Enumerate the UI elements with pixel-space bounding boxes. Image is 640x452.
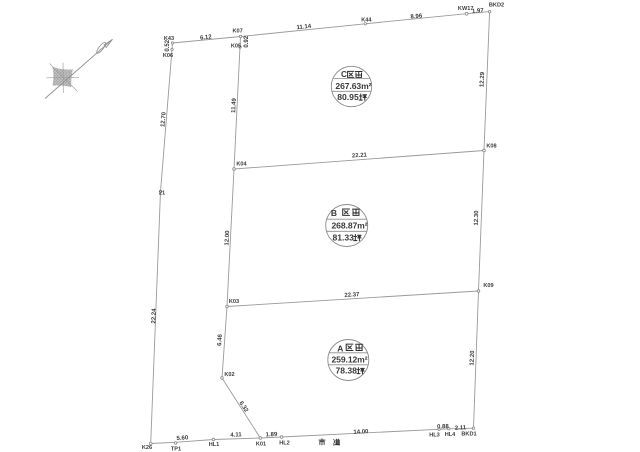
svg-text:BKD1: BKD1 [461, 432, 476, 438]
svg-text:11.49: 11.49 [231, 97, 238, 113]
svg-text:11.14: 11.14 [296, 24, 312, 32]
svg-text:K02: K02 [224, 372, 234, 378]
svg-text:K07: K07 [232, 29, 242, 35]
svg-text:22.24: 22.24 [151, 308, 158, 324]
svg-text:K03: K03 [229, 299, 239, 305]
svg-text:6.32: 6.32 [237, 401, 249, 415]
svg-text:6.12: 6.12 [200, 34, 213, 41]
svg-text:80.95: 80.95 [337, 92, 359, 102]
svg-text:2.11: 2.11 [455, 425, 467, 431]
svg-text:K04: K04 [236, 162, 247, 168]
svg-text:22.37: 22.37 [344, 292, 360, 299]
svg-text:K05: K05 [231, 44, 241, 50]
svg-text:K44: K44 [361, 18, 372, 24]
svg-text:K08: K08 [486, 144, 496, 150]
svg-text:12.20: 12.20 [470, 350, 477, 366]
svg-text:K01: K01 [256, 442, 266, 448]
svg-text:TP1: TP1 [171, 447, 181, 452]
svg-text:259.12m²: 259.12m² [332, 355, 368, 365]
svg-text:267.63m²: 267.63m² [335, 81, 371, 91]
svg-text:81.33: 81.33 [332, 232, 354, 242]
svg-text:B: B [331, 208, 337, 218]
svg-text:0.92: 0.92 [244, 35, 250, 47]
svg-text:12.30: 12.30 [474, 210, 481, 226]
svg-text:0.88: 0.88 [437, 424, 450, 430]
svg-text:78.38: 78.38 [335, 365, 357, 375]
svg-text:C: C [341, 70, 347, 79]
svg-text:4.11: 4.11 [230, 432, 242, 438]
svg-text:K09: K09 [483, 283, 493, 289]
svg-text:HL2: HL2 [279, 441, 290, 447]
svg-text:14.00: 14.00 [353, 429, 369, 436]
svg-text:12.00: 12.00 [224, 230, 231, 246]
svg-text:12.70: 12.70 [160, 111, 167, 127]
svg-text:21: 21 [159, 190, 165, 196]
svg-text:8.96: 8.96 [410, 13, 423, 20]
svg-text:HL1: HL1 [209, 442, 220, 448]
svg-text:12.29: 12.29 [480, 71, 487, 87]
svg-text:0.52: 0.52 [165, 39, 171, 51]
svg-text:K26: K26 [142, 445, 152, 451]
svg-text:HL4: HL4 [445, 432, 456, 438]
svg-text:BKD2: BKD2 [489, 2, 504, 8]
svg-text:A: A [337, 343, 343, 353]
svg-text:1.89: 1.89 [266, 432, 279, 438]
svg-text:5.60: 5.60 [176, 435, 189, 442]
svg-text:22.21: 22.21 [352, 152, 368, 159]
svg-text:268.87m²: 268.87m² [332, 221, 368, 231]
svg-text:K06: K06 [163, 53, 173, 59]
svg-text:HL3: HL3 [429, 432, 440, 438]
svg-text:1.97: 1.97 [472, 8, 485, 15]
svg-text:6.46: 6.46 [217, 333, 224, 346]
